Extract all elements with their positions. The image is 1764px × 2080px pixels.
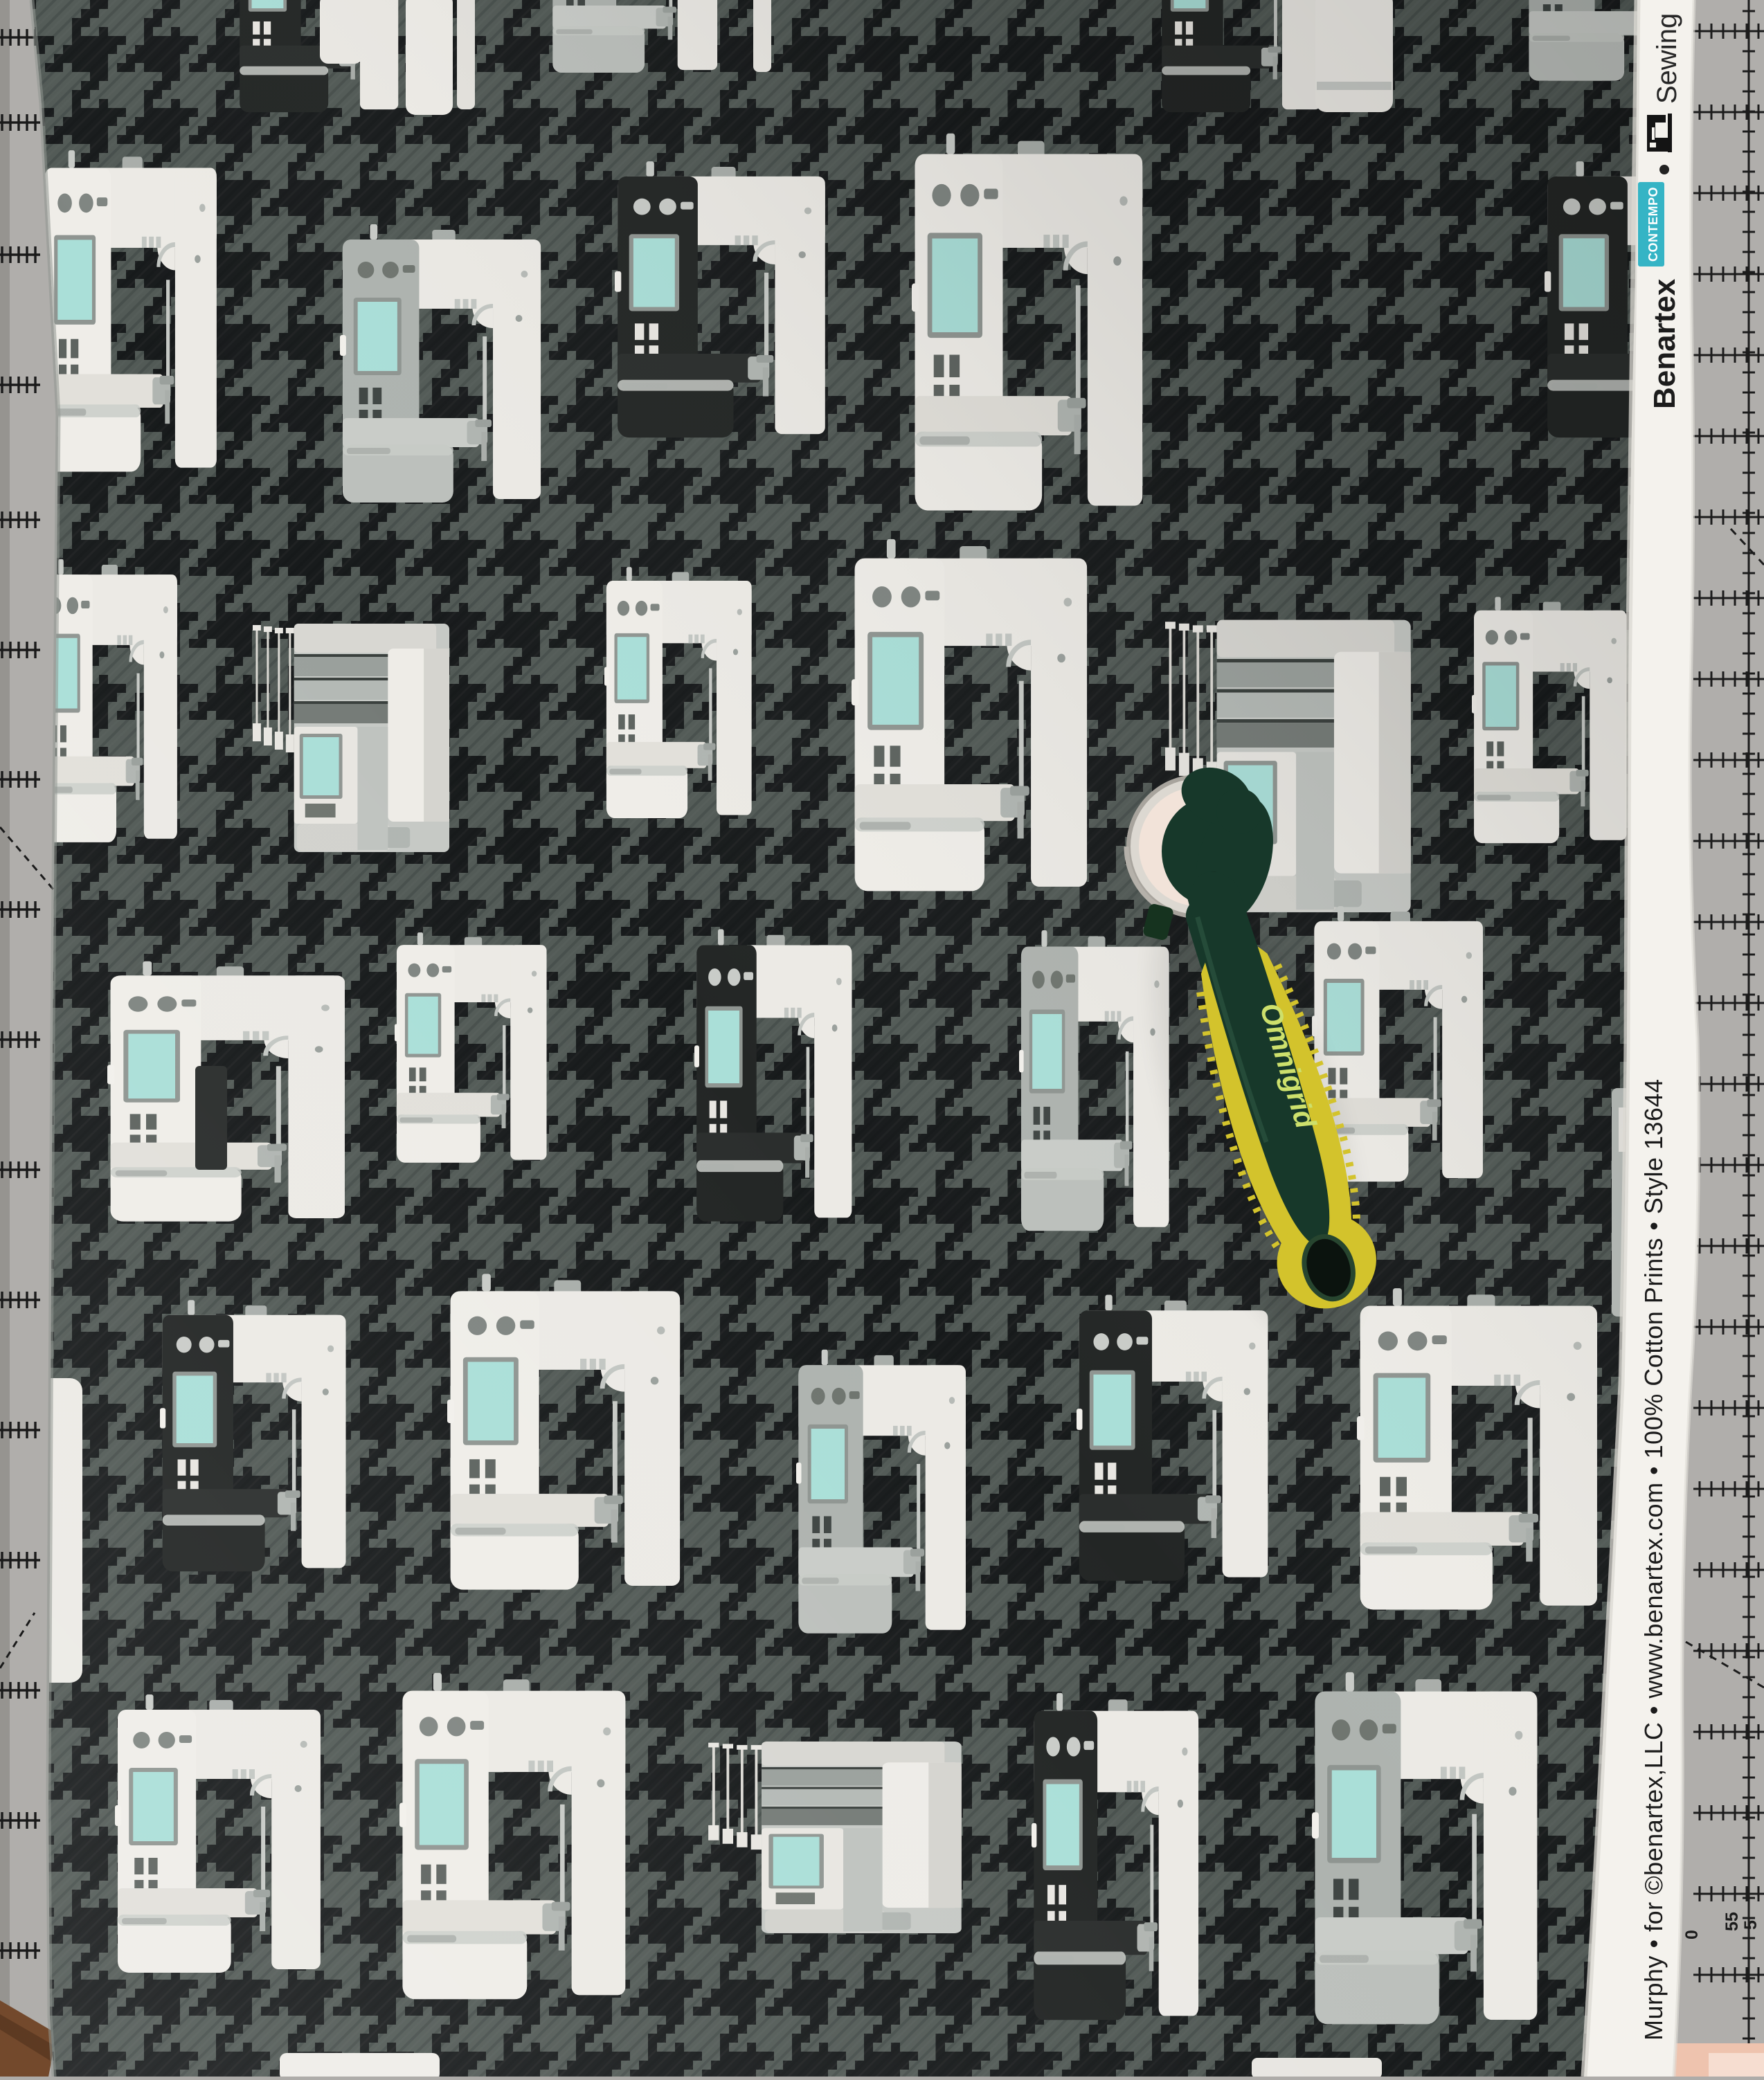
svg-text:Murphy • for ©benartex,LLC • w: Murphy • for ©benartex,LLC • www.benarte… (1639, 1078, 1668, 2041)
svg-text:Sewing: Sewing (1652, 13, 1682, 104)
svg-text:5: 5 (1741, 1920, 1761, 1930)
svg-text:Benartex: Benartex (1648, 278, 1682, 409)
svg-text:0: 0 (1682, 1930, 1702, 1939)
svg-text:55: 55 (1722, 1912, 1742, 1931)
svg-text:CONTEMPO: CONTEMPO (1646, 187, 1660, 262)
